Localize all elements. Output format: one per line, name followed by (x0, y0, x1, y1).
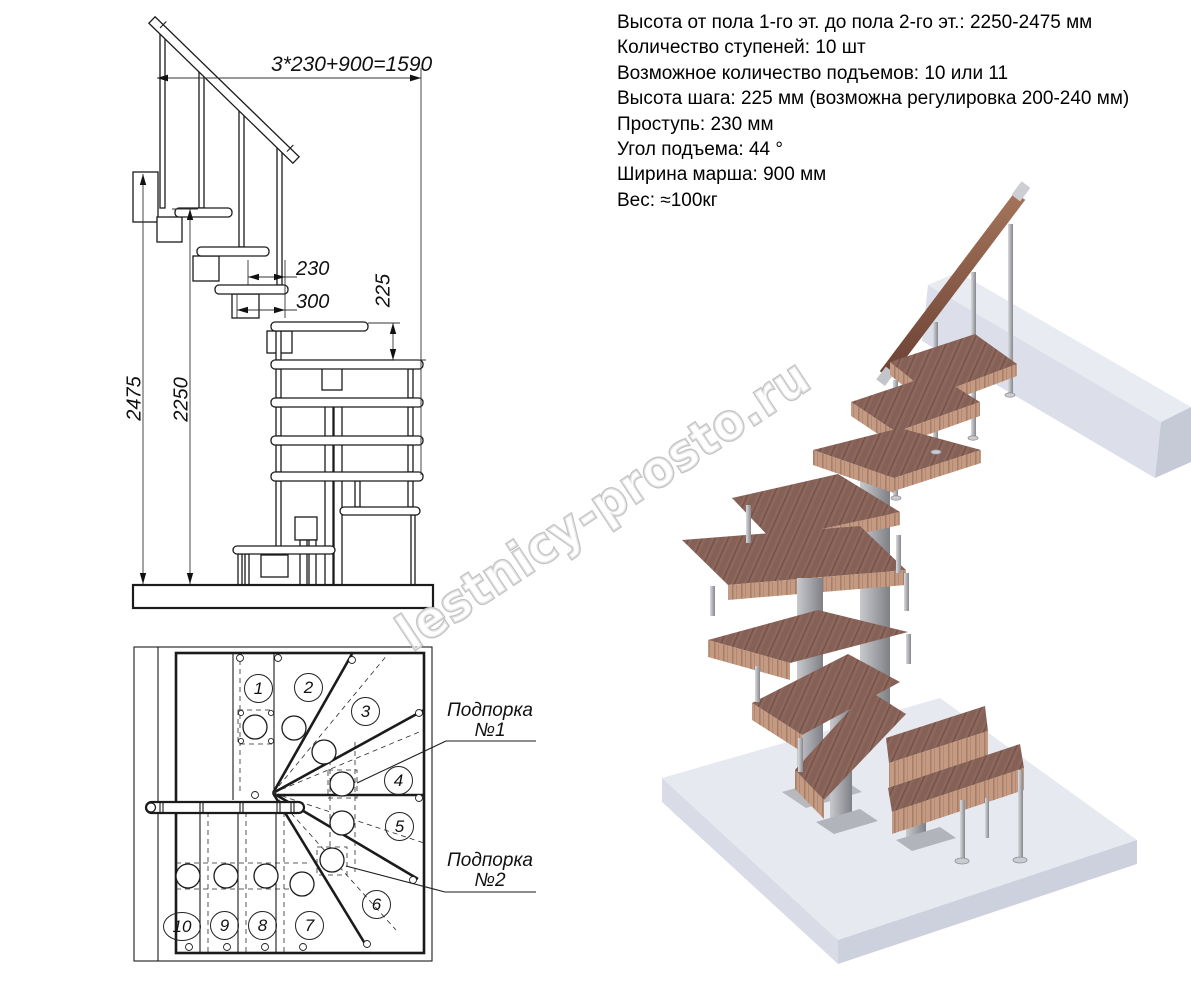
plan-view (134, 647, 536, 961)
plan-step-number-4: 4 (384, 766, 413, 795)
plan-step-number-6: 6 (362, 890, 391, 919)
plan-step-number-3: 3 (351, 697, 380, 726)
spec-block: Высота от пола 1-го эт. до пола 2-го эт.… (617, 10, 1177, 213)
plan-step-number-10: 10 (163, 912, 201, 941)
plan-step-number-1: 1 (244, 674, 273, 703)
plan-step-number-8: 8 (248, 911, 277, 940)
support-label-1-line2: №1 (442, 721, 538, 741)
support-label-2-line1: Подпорка (442, 851, 538, 871)
elevation-handrail (149, 17, 299, 163)
support-label-1-line1: Подпорка (442, 701, 538, 721)
dim-module-depth: 300 (296, 291, 329, 314)
spec-line-tread: Проступь: 230 мм (617, 112, 1177, 137)
plan-step-number-9: 9 (210, 911, 239, 940)
spec-line-weight: Вес: ≈100кг (617, 188, 1177, 213)
support-label-2: Подпорка №2 (442, 851, 538, 891)
dim-tread-depth: 230 (296, 258, 329, 281)
plan-handrail-bar (146, 802, 304, 813)
treads-upper (813, 334, 1017, 493)
plan-step-number-7: 7 (295, 911, 324, 940)
spec-line-steps: Количество ступеней: 10 шт (617, 35, 1177, 60)
elevation-columns (300, 399, 342, 585)
support-label-2-line2: №2 (442, 871, 538, 891)
wall-mount (133, 172, 158, 222)
stair-drawing-page: lestnicy-prosto.ru Высота от пола 1-го э… (0, 0, 1191, 993)
spec-line-height: Высота от пола 1-го эт. до пола 2-го эт.… (617, 10, 1177, 35)
spec-line-step-height: Высота шага: 225 мм (возможна регулировк… (617, 86, 1177, 111)
dim-total-run: 3*230+900=1590 (271, 53, 421, 77)
spec-line-rises: Возможное количество подъемов: 10 или 11 (617, 61, 1177, 86)
render-3d (662, 181, 1191, 964)
spec-line-width: Ширина марша: 900 мм (617, 162, 1177, 187)
plan-step-number-2: 2 (294, 673, 323, 702)
floor-slab (133, 585, 433, 608)
support-label-1: Подпорка №1 (442, 701, 538, 741)
spec-line-angle: Угол подъема: 44 ° (617, 137, 1177, 162)
plan-tread-edges (273, 654, 424, 947)
dim-height-min: 2250 (171, 370, 194, 430)
plan-step-number-5: 5 (385, 812, 414, 841)
dim-step-height: 225 (373, 261, 396, 321)
dim-height-max: 2475 (124, 369, 147, 429)
